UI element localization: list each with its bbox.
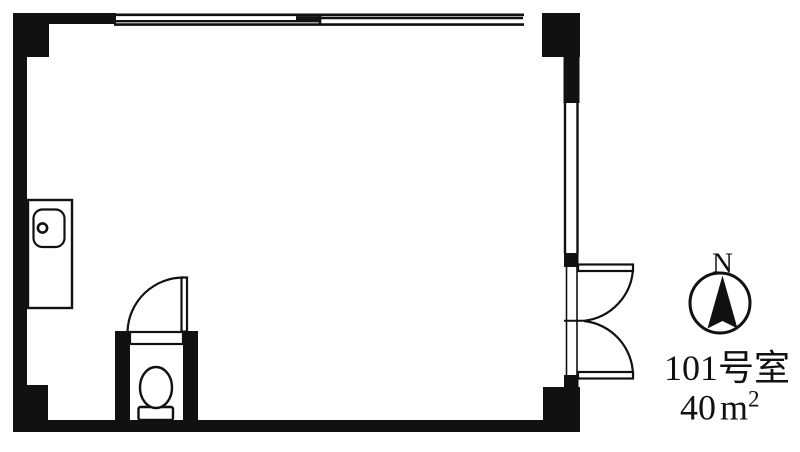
- sliding-window-top: [114, 15, 524, 25]
- wall-bottom: [13, 420, 580, 432]
- wall-right-upper: [564, 13, 580, 103]
- wall-right-between-window-and-door: [564, 253, 579, 267]
- toilet-room: [128, 277, 188, 420]
- pillar-bottom-right: [543, 387, 580, 432]
- window-right: [565, 103, 578, 253]
- entrance-door-leaf-bottom: [578, 372, 633, 379]
- toilet-bowl: [140, 367, 172, 408]
- kitchen-sink: [28, 200, 72, 308]
- area-label: 40m2: [680, 387, 760, 428]
- area-value: 40: [680, 388, 716, 428]
- entrance-double-door: [578, 265, 633, 379]
- compass-north-label: N: [712, 248, 733, 280]
- entrance-door-leaf-top: [578, 265, 633, 272]
- compass: N: [690, 248, 750, 334]
- sink-faucet: [38, 223, 47, 232]
- wall-right-below-door: [564, 375, 579, 389]
- entrance-door-swing-arc-bottom: [584, 321, 633, 375]
- entrance-door-swing-arc-top: [584, 268, 633, 321]
- area-unit: m: [720, 388, 748, 428]
- wall-toilet-right: [183, 331, 198, 420]
- toilet-door-swing-arc: [128, 277, 185, 331]
- walls: [13, 13, 580, 432]
- plan-labels: 101号室 40m2: [664, 348, 790, 428]
- toilet-doorway-threshold: [130, 332, 183, 344]
- floor-plan: N 101号室 40m2: [0, 0, 800, 452]
- area-unit-exponent: 2: [748, 387, 760, 412]
- wall-left: [13, 13, 27, 432]
- toilet-door-leaf: [182, 278, 188, 332]
- entrance-door-frame: [564, 267, 584, 375]
- wall-toilet-left: [115, 331, 130, 420]
- floor-plan-canvas: N 101号室 40m2: [0, 0, 800, 452]
- room-number-label: 101号室: [664, 348, 790, 388]
